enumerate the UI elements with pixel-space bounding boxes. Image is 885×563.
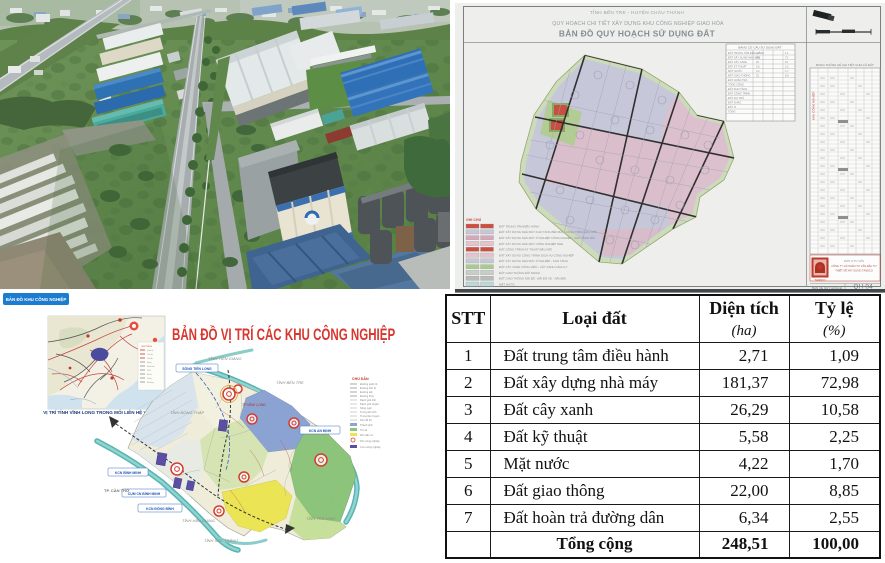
svg-text:TỈNH TIỀN GIANG: TỈNH TIỀN GIANG: [208, 356, 242, 361]
svg-text:181: 181: [756, 56, 761, 60]
svg-text:ĐẤT TRUNG TÂM ĐIỀU HÀNH: ĐẤT TRUNG TÂM ĐIỀU HÀNH: [499, 223, 539, 228]
svg-text:2,7: 2,7: [756, 51, 760, 55]
svg-text:ĐẤT XÂY DỰNG NHÀ MÁY CÔNG NGHI: ĐẤT XÂY DỰNG NHÀ MÁY CÔNG NGHIỆP NHẸ: [499, 241, 563, 246]
svg-text:BẢN ĐỒ KHU CÔNG NGHIỆP: BẢN ĐỒ KHU CÔNG NGHIỆP: [6, 297, 67, 302]
svg-text:TANDCO: TANDCO: [815, 278, 826, 282]
svg-text:ĐẤT XÂY DỰNG NHÀ MÁY KHO TÀNG: ĐẤT XÂY DỰNG NHÀ MÁY KHO TÀNG BẾN BÃI - …: [499, 229, 597, 234]
svg-text:TP VĨNH LONG: TP VĨNH LONG: [242, 402, 266, 407]
svg-text:4,2: 4,2: [756, 69, 760, 73]
svg-text:Khu công nghiệp: Khu công nghiệp: [360, 439, 380, 443]
svg-text:Trung tâm tỉnh: Trung tâm tỉnh: [360, 410, 377, 414]
svg-text:Cảng: Cảng: [147, 377, 151, 380]
svg-text:KCN BÌNH MINH: KCN BÌNH MINH: [115, 470, 142, 475]
svg-text:TỈNH TRÀ VINH: TỈNH TRÀ VINH: [306, 516, 335, 521]
svg-text:BẢNG CƠ CẤU SỬ DỤNG ĐẤT: BẢNG CƠ CẤU SỬ DỤNG ĐẤT: [738, 45, 781, 50]
svg-text:Đường quốc lộ: Đường quốc lộ: [360, 382, 378, 386]
svg-text:8,9: 8,9: [785, 74, 789, 78]
svg-text:TP. CẦN THƠ: TP. CẦN THƠ: [104, 488, 130, 493]
svg-text:Sông: Sông: [147, 362, 151, 364]
svg-text:Cao tốc: Cao tốc: [147, 353, 153, 356]
svg-text:5,6: 5,6: [756, 65, 760, 69]
svg-text:Đô thị: Đô thị: [147, 373, 152, 376]
svg-text:Sông ngòi: Sông ngòi: [360, 406, 372, 410]
svg-text:GHI CHÚ: GHI CHÚ: [466, 217, 482, 222]
svg-text:CHÚ THÍCH: CHÚ THÍCH: [141, 345, 153, 348]
svg-text:BẢN ĐỒ QUY HOẠCH SỬ DỤNG ĐẤT: BẢN ĐỒ QUY HOẠCH SỬ DỤNG ĐẤT: [559, 28, 716, 39]
svg-text:TỈNH ĐỒNG THÁP: TỈNH ĐỒNG THÁP: [170, 410, 205, 415]
svg-text:Đường tỉnh lộ: Đường tỉnh lộ: [360, 386, 376, 390]
svg-text:ĐẤT GIAO THÔNG NỘI BỘ - BÃI ĐỖ: ĐẤT GIAO THÔNG NỘI BỘ - BÃI ĐỖ XE - SÂN …: [499, 276, 566, 281]
svg-text:MẶT NƯỚC: MẶT NƯỚC: [499, 281, 515, 286]
svg-text:TỈNH BẾN TRE - HUYỆN CHÂU TH: TỈNH BẾN TRE - HUYỆN CHÂU THÀNH: [590, 8, 684, 15]
svg-text:Ranh tỉnh: Ranh tỉnh: [147, 365, 155, 368]
svg-text:TỈNH SÓC TRĂNG: TỈNH SÓC TRĂNG: [204, 538, 238, 543]
svg-text:Khu đô thị: Khu đô thị: [360, 418, 372, 422]
svg-text:ĐẤT GIAO THÔNG ĐỐI NGOẠI: ĐẤT GIAO THÔNG ĐỐI NGOẠI: [499, 270, 540, 275]
svg-text:Tỉnh lộ: Tỉnh lộ: [147, 357, 152, 360]
svg-text:1,7: 1,7: [785, 69, 789, 73]
svg-text:Đường thủy: Đường thủy: [360, 394, 375, 398]
svg-text:KCN AN ĐỊNH: KCN AN ĐỊNH: [309, 429, 332, 433]
svg-text:TỈNH BẾN TRE: TỈNH BẾN TRE: [276, 380, 304, 385]
svg-text:Sân bay: Sân bay: [147, 382, 154, 384]
svg-text:TỈNH HẬU GIANG: TỈNH HẬU GIANG: [182, 518, 215, 523]
svg-text:BẢN ĐỒ VỊ TRÍ CÁC KHU CÔNG NGH: BẢN ĐỒ VỊ TRÍ CÁC KHU CÔNG NGHIỆP: [172, 324, 395, 345]
svg-text:QUY HOẠCH CHI TIẾT XÂY DỰNG KH: QUY HOẠCH CHI TIẾT XÂY DỰNG KHU CÔNG NGH…: [552, 19, 724, 27]
svg-text:Trung tâm huyện: Trung tâm huyện: [360, 414, 380, 418]
svg-text:SÔNG TIỀN LONG: SÔNG TIỀN LONG: [182, 366, 212, 371]
svg-text:KHU CÔNG NGHIỆP: KHU CÔNG NGHIỆP: [811, 91, 816, 120]
svg-text:ĐẤT XÂY DỰNG CÔNG TRÌNH DỊCH V: ĐẤT XÂY DỰNG CÔNG TRÌNH DỊCH VỤ CÔNG NGH…: [499, 252, 574, 257]
svg-text:KCN ĐÔNG BÌNH: KCN ĐÔNG BÌNH: [146, 506, 174, 511]
svg-text:Thị xã: Thị xã: [360, 428, 368, 432]
svg-text:2,2: 2,2: [785, 65, 789, 69]
svg-text:Cụm công nghiệp: Cụm công nghiệp: [360, 445, 381, 449]
svg-text:Ranh giới tỉnh: Ranh giới tỉnh: [360, 398, 377, 402]
svg-text:Khu dân cư: Khu dân cư: [360, 433, 374, 437]
svg-text:ĐẤT CÔNG TRÌNH KỸ THUẬT ĐẦU MỐ: ĐẤT CÔNG TRÌNH KỸ THUẬT ĐẦU MỐI: [499, 247, 552, 252]
svg-text:CỤM CN BÌNH MINH: CỤM CN BÌNH MINH: [128, 491, 161, 496]
svg-text:1,1: 1,1: [785, 51, 789, 55]
svg-text:ĐẤT CÂY XANH CÔNG VIÊN - CÂY X: ĐẤT CÂY XANH CÔNG VIÊN - CÂY XANH CÁCH L…: [499, 264, 568, 269]
svg-text:BẢNG THỐNG KÊ CHI TIẾT CHIA LÔ: BẢNG THỐNG KÊ CHI TIẾT CHIA LÔ ĐẤT: [816, 62, 874, 67]
svg-text:ĐẤT XÂY DỰNG NHÀ MÁY XÍ NGHIỆP: ĐẤT XÂY DỰNG NHÀ MÁY XÍ NGHIỆP - KHO TÀN…: [499, 258, 569, 263]
svg-text:Thành phố: Thành phố: [360, 423, 373, 427]
svg-text:ĐẤT XÂY DỰNG NHÀ MÁY XÍ NGHIỆP: ĐẤT XÂY DỰNG NHÀ MÁY XÍ NGHIỆP CÔNG NGHI…: [499, 235, 595, 240]
svg-text:CHÚ DẪN: CHÚ DẪN: [352, 376, 369, 381]
svg-text:Ranh giới huyện: Ranh giới huyện: [360, 402, 380, 406]
svg-text:Quốc lộ: Quốc lộ: [147, 349, 153, 352]
